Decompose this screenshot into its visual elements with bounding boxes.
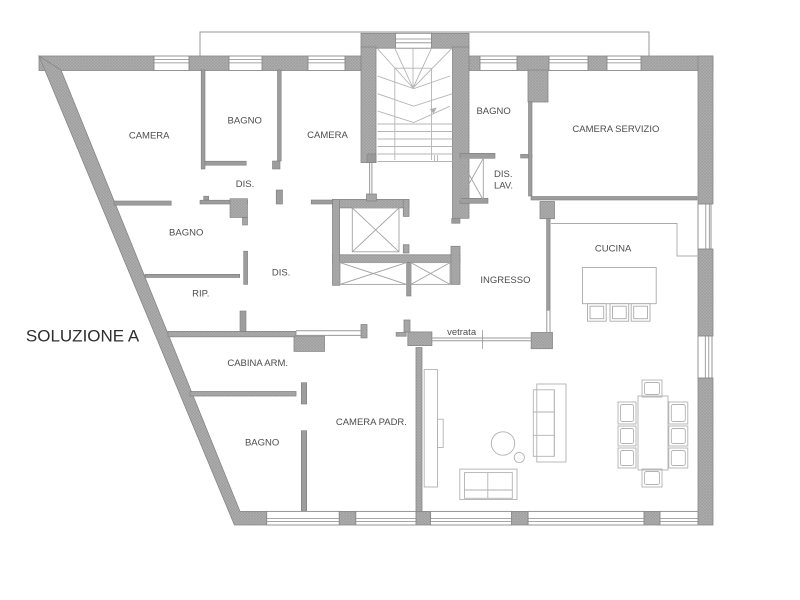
svg-text:CABINA ARM.: CABINA ARM. xyxy=(227,358,288,369)
svg-text:CAMERA PADR.: CAMERA PADR. xyxy=(336,417,407,428)
svg-text:INGRESSO: INGRESSO xyxy=(480,275,530,286)
svg-text:vetrata: vetrata xyxy=(447,327,477,338)
svg-text:CAMERA: CAMERA xyxy=(307,130,348,141)
svg-text:DIS.: DIS. xyxy=(236,179,254,190)
svg-text:DIS.: DIS. xyxy=(494,169,512,180)
svg-text:DIS.: DIS. xyxy=(272,268,290,279)
svg-text:BAGNO: BAGNO xyxy=(245,438,279,449)
svg-text:BAGNO: BAGNO xyxy=(228,115,262,126)
svg-text:BAGNO: BAGNO xyxy=(476,106,510,117)
svg-text:CUCINA: CUCINA xyxy=(595,244,632,255)
svg-text:BAGNO: BAGNO xyxy=(169,227,203,238)
svg-text:CAMERA: CAMERA xyxy=(129,131,170,142)
svg-text:SOLUZIONE A: SOLUZIONE A xyxy=(26,327,140,346)
svg-text:LAV.: LAV. xyxy=(494,180,513,191)
svg-text:CAMERA SERVIZIO: CAMERA SERVIZIO xyxy=(572,124,659,135)
svg-text:RIP.: RIP. xyxy=(192,289,209,300)
